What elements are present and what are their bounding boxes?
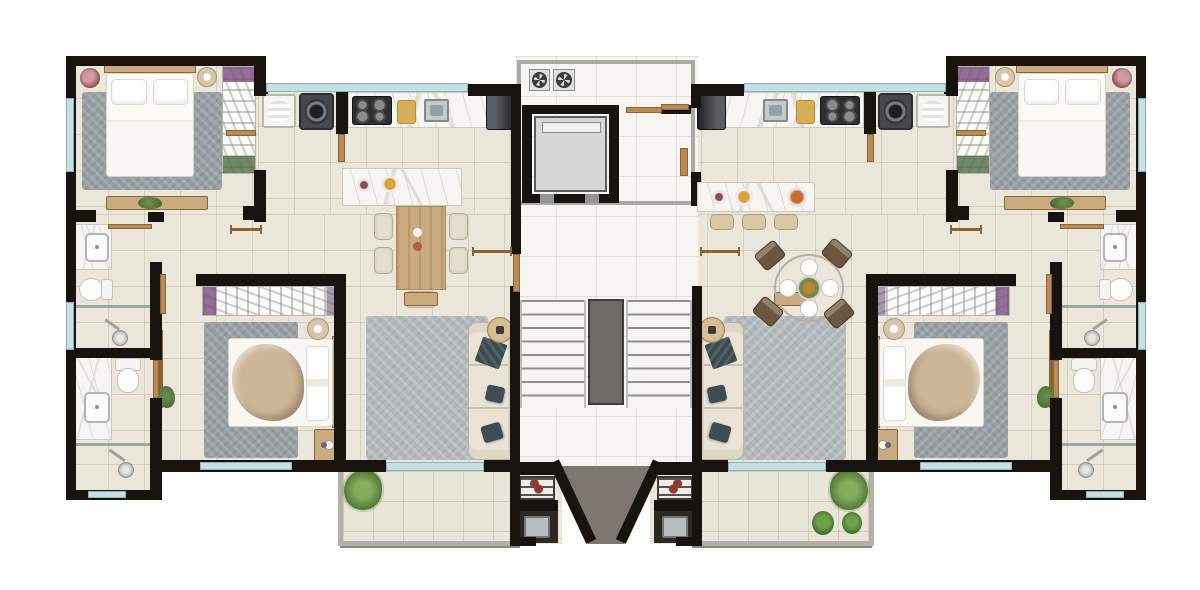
wall — [66, 352, 76, 500]
window-kitchen-mirrored — [744, 83, 946, 92]
shower-glass2 — [75, 443, 155, 446]
wall — [148, 212, 164, 222]
door-leaf-laundry — [338, 134, 345, 162]
bedside-lamp2 — [307, 318, 329, 340]
toilet-bath1-mirrored — [1099, 276, 1133, 301]
wall-mirrored — [676, 537, 702, 546]
window-bath2-mirrored — [1086, 491, 1124, 498]
bar-stool — [774, 214, 798, 230]
shower-glass1-mirrored — [1061, 305, 1137, 308]
elevator-door-sill — [540, 194, 554, 203]
door-leaf-laundry-mirrored — [867, 134, 874, 162]
window-bath1-mirrored — [1138, 302, 1146, 350]
wardrobe-bedroom2-mirrored — [874, 286, 1010, 316]
bbq-counter-mirrored — [654, 500, 702, 511]
shower-head2 — [106, 450, 136, 480]
wall-mirrored — [1136, 352, 1146, 500]
wall-mirrored — [694, 84, 744, 96]
dining-chair — [374, 247, 393, 274]
sink-bath2 — [84, 392, 110, 423]
fridge-mirrored — [697, 91, 726, 130]
wall-mirrored — [826, 460, 868, 472]
elevator-wall — [522, 105, 619, 114]
bed-double-mirrored — [1018, 73, 1106, 177]
laundry-tank — [262, 94, 296, 128]
wall — [334, 274, 346, 466]
door-swing-mark — [472, 250, 512, 253]
window-kitchen — [266, 83, 468, 92]
wall — [336, 86, 348, 134]
bedside-lamp1-mirrored — [995, 67, 1015, 87]
laundry-tank-mirrored — [916, 94, 950, 128]
cutting-board — [397, 100, 416, 124]
dining-chair — [449, 213, 468, 240]
side-table-mirrored — [699, 317, 725, 343]
kitchen-sink-mirrored — [763, 99, 788, 122]
wall-mirrored — [948, 56, 1146, 66]
tv-stand-living — [404, 292, 438, 306]
kitchen-island — [342, 168, 462, 206]
stair-flight — [520, 300, 586, 408]
door-jamb-right-unit — [680, 148, 688, 176]
corridor-wall-left — [511, 84, 521, 254]
window-bedroom1 — [66, 98, 74, 172]
dining-chair — [449, 247, 468, 274]
exhaust-fan — [553, 69, 575, 91]
dining-chair — [374, 213, 393, 240]
stair-flight-mirrored — [626, 300, 692, 408]
washing-machine-mirrored — [878, 93, 913, 130]
cooktop-mirrored — [820, 96, 860, 125]
sofa-pillow — [485, 384, 506, 403]
window-bedroom2-mirrored — [920, 462, 1012, 470]
elevator-wall — [522, 194, 619, 203]
corridor-wall-right — [691, 84, 701, 108]
bbq-grill — [519, 476, 555, 500]
door-leaf-bedroom2 — [160, 274, 166, 314]
dresser-plant — [138, 197, 162, 209]
bedside-lamp2-mirrored — [883, 318, 905, 340]
wall — [66, 56, 264, 66]
sink-bath1-mirrored — [1103, 233, 1127, 262]
bar-stool — [710, 214, 734, 230]
elevator-door-sill — [585, 194, 599, 203]
wall — [243, 206, 266, 220]
bbq-grill-mirrored — [657, 476, 693, 500]
wardrobe-bedroom2 — [202, 286, 338, 316]
sliding-door-living — [386, 462, 484, 471]
bbq-counter — [510, 500, 558, 511]
toilet-bath1 — [79, 276, 113, 301]
wall-mirrored — [866, 274, 1016, 286]
door-swing-mark-mirrored — [700, 250, 740, 253]
elevator-wall — [609, 105, 619, 203]
wall — [66, 348, 160, 358]
wall — [196, 274, 346, 286]
window-bath1 — [66, 302, 74, 350]
hall-door — [626, 107, 662, 113]
wall-mirrored — [864, 86, 876, 134]
bed-double2 — [228, 338, 333, 427]
wall-mirrored — [1050, 398, 1062, 500]
stair-wall — [510, 286, 520, 472]
shower-head1 — [102, 320, 130, 348]
window-bedroom2 — [200, 462, 292, 470]
wall-mirrored — [1052, 348, 1146, 358]
toilet-bath2 — [112, 358, 142, 393]
fruit-bowl — [787, 187, 807, 207]
shower-head2-mirrored — [1076, 450, 1106, 480]
dining-table — [396, 206, 446, 290]
kitchen-sink — [424, 99, 449, 122]
elevator-wall — [522, 105, 532, 203]
elevator-car — [534, 116, 607, 192]
wardrobe-bedroom1 — [222, 66, 256, 174]
bed-double2-mirrored — [879, 338, 984, 427]
balcony-palm — [812, 511, 834, 535]
stair-wall-mirrored — [692, 286, 702, 472]
balcony-fern-mirrored — [830, 470, 868, 510]
cutting-board-mirrored — [796, 100, 815, 124]
wardrobe-bedroom1-mirrored — [956, 66, 990, 174]
sliding-door-living-mirrored — [728, 462, 826, 471]
door-swing-mark-mirrored — [950, 228, 982, 231]
shower-glass1 — [75, 305, 151, 308]
dresser-plant-mirrored — [1050, 197, 1074, 209]
wall — [344, 460, 386, 472]
wall — [510, 537, 536, 546]
wall — [150, 398, 162, 500]
door-leaf-bath1 — [108, 224, 152, 229]
wall-mirrored — [1048, 212, 1064, 222]
cooktop — [352, 96, 392, 125]
flower-pot — [80, 68, 100, 88]
shower-glass2-mirrored — [1057, 443, 1137, 446]
balcony-palm — [842, 512, 862, 534]
door-leaf-bedroom2-mirrored — [1046, 274, 1052, 314]
washing-machine — [299, 93, 334, 130]
shower-head1-mirrored — [1082, 320, 1110, 348]
floor-plan — [0, 0, 1200, 590]
toilet-bath2-mirrored — [1070, 358, 1100, 393]
door-leaf-bedroom1 — [226, 130, 256, 136]
bar-stool — [742, 214, 766, 230]
window-bedroom1-mirrored — [1138, 98, 1146, 172]
door-leaf-bedroom1-mirrored — [956, 130, 986, 136]
door-leaf-bath2-mirrored — [1053, 360, 1059, 398]
stair-rail — [588, 299, 624, 405]
sink-bath2-mirrored — [1102, 392, 1128, 423]
sink-bath1 — [85, 233, 109, 262]
bed-double — [106, 73, 194, 177]
wall-mirrored — [946, 206, 969, 220]
door-swing-mark — [230, 228, 262, 231]
door-leaf-bath2 — [153, 360, 159, 398]
door-leaf-bath1-mirrored — [1060, 224, 1104, 229]
wall-mirrored — [866, 274, 878, 466]
entry-door-right-unit — [661, 104, 689, 110]
entry-door-left-unit — [513, 254, 520, 292]
window-bath2 — [88, 491, 126, 498]
flower-pot-mirrored — [1112, 68, 1132, 88]
balcony-fern — [344, 470, 382, 510]
exhaust-fan — [529, 69, 550, 91]
bedside-lamp1 — [197, 67, 217, 87]
